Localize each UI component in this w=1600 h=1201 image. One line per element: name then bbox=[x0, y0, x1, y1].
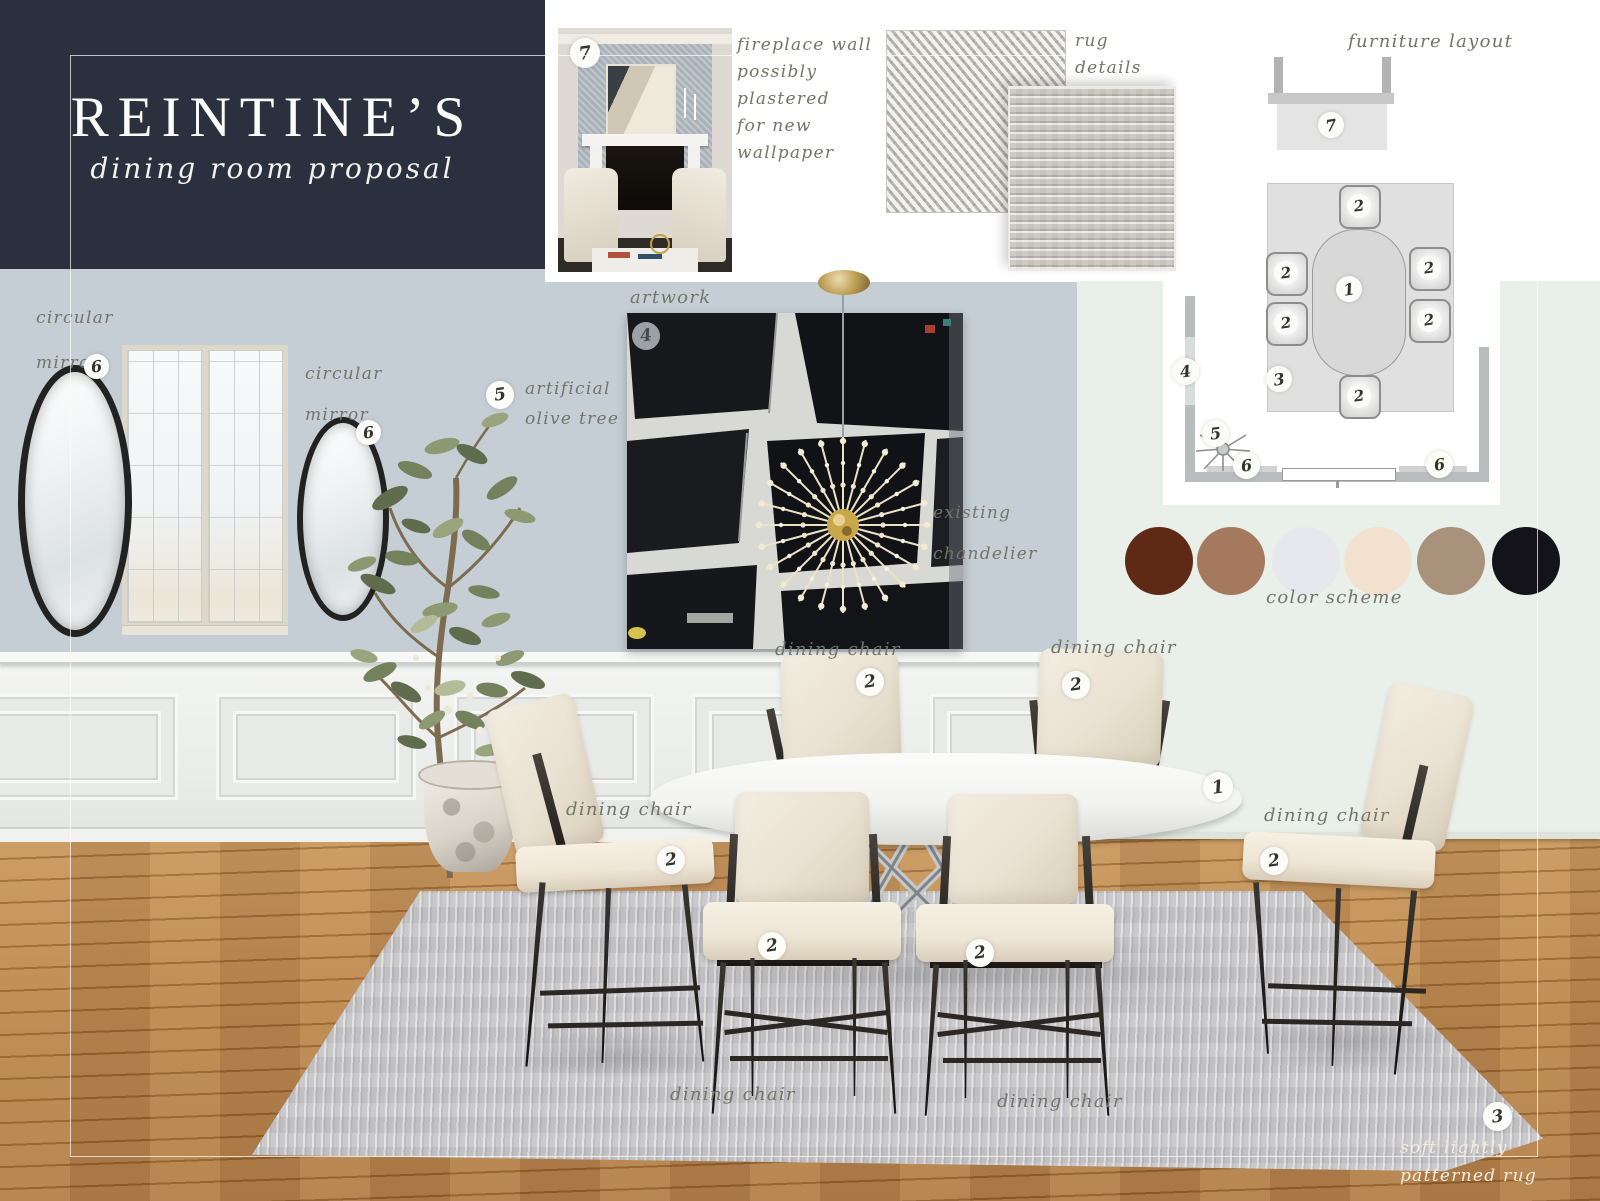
dining-chair-back bbox=[948, 794, 1078, 904]
chair-shadow bbox=[1240, 1020, 1460, 1070]
books bbox=[638, 254, 662, 259]
window-sill bbox=[122, 625, 288, 635]
plan-fireplace-post bbox=[1274, 57, 1283, 97]
chandelier-canopy bbox=[818, 270, 870, 295]
dining-chair-label: dining chair bbox=[1264, 802, 1390, 829]
plan-wall-right bbox=[1479, 347, 1489, 482]
rug-note: rug details bbox=[1075, 28, 1142, 82]
furniture-layout-label: furniture layout bbox=[1348, 28, 1513, 55]
plan-chair: 2 bbox=[1266, 302, 1308, 346]
chandelier bbox=[733, 405, 953, 645]
chandelier-label: existing chandelier bbox=[933, 493, 1038, 575]
rug-swatch-linen bbox=[1008, 86, 1176, 271]
color-swatch bbox=[1197, 527, 1265, 595]
plan-chair: 2 bbox=[1339, 185, 1381, 229]
rug-caption: soft lightly patterned rug bbox=[1400, 1134, 1537, 1190]
candle bbox=[694, 94, 696, 120]
plan-chair: 2 bbox=[1409, 299, 1451, 343]
wainscot-panel bbox=[0, 694, 178, 800]
plan-chair: 2 bbox=[1339, 375, 1381, 419]
plan-window-bottom bbox=[1282, 468, 1396, 481]
mantel-art bbox=[606, 64, 676, 138]
chair-stretcher bbox=[730, 1056, 888, 1061]
mantel-shelf bbox=[582, 134, 708, 146]
dining-chair-label: dining chair bbox=[670, 1081, 796, 1108]
dining-chair-label: dining chair bbox=[997, 1088, 1123, 1115]
color-swatch bbox=[1492, 527, 1560, 595]
window bbox=[122, 345, 288, 635]
oval-mirror-large bbox=[18, 365, 132, 637]
plan-fireplace-post bbox=[1382, 57, 1391, 97]
plan-fireplace-mantel bbox=[1268, 93, 1394, 104]
dining-chair-back bbox=[1036, 648, 1164, 768]
olive-tree-label: artificial olive tree bbox=[525, 374, 619, 434]
page-subtitle: dining room proposal bbox=[90, 152, 454, 185]
dining-chair-back bbox=[735, 792, 869, 904]
artwork-label: artwork bbox=[630, 284, 711, 311]
plan-chair: 2 bbox=[1266, 252, 1308, 296]
title-block: REINTINE’S dining room proposal bbox=[0, 0, 545, 269]
window-pane bbox=[127, 350, 202, 623]
plan-table bbox=[1312, 229, 1406, 376]
color-swatch bbox=[1417, 527, 1485, 595]
dining-chair-label: dining chair bbox=[1051, 634, 1177, 661]
design-board: REINTINE’S dining room proposal 7 firepl… bbox=[0, 0, 1600, 1201]
chair-stretcher bbox=[943, 1058, 1101, 1063]
dining-chair-label: dining chair bbox=[566, 796, 692, 823]
fireplace-note: fireplace wall possibly plastered for ne… bbox=[737, 32, 872, 167]
gold-orb-decor bbox=[650, 234, 670, 254]
color-scheme-label: color scheme bbox=[1266, 584, 1403, 611]
window-pane bbox=[208, 350, 283, 623]
color-swatch bbox=[1125, 527, 1193, 595]
chair-shadow bbox=[500, 1030, 740, 1080]
plan-chair: 2 bbox=[1409, 247, 1451, 291]
books bbox=[608, 252, 630, 258]
dining-chair-seat bbox=[703, 902, 901, 960]
page-title: REINTINE’S bbox=[71, 85, 474, 150]
candle bbox=[684, 88, 686, 118]
plan-window-tick bbox=[1336, 480, 1339, 488]
dining-chair-seat bbox=[916, 904, 1114, 962]
dining-chair-label: dining chair bbox=[775, 636, 901, 663]
